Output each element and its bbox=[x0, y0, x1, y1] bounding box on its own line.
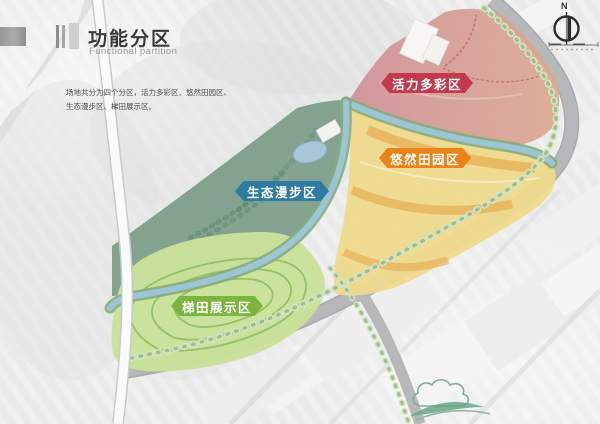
title-deco-bar bbox=[69, 23, 79, 49]
title-deco-bar bbox=[62, 25, 65, 48]
description-line-2: 生态漫步区、梯田展示区。 bbox=[66, 102, 156, 111]
description-line-1: 场地共分为四个分区，活力多彩区、悠然田园区、 bbox=[66, 88, 231, 97]
zone-label-terrace: 梯田展示区 bbox=[171, 296, 263, 316]
scale-bar bbox=[549, 42, 598, 50]
north-label: N bbox=[561, 1, 568, 11]
title-deco-block bbox=[0, 27, 26, 46]
page-subtitle: Functional partition bbox=[89, 46, 177, 57]
description-text: 场地共分为四个分区，活力多彩区、悠然田园区、 生态漫步区、梯田展示区。 bbox=[66, 86, 236, 114]
company-logo: 园林股份 股票代码:605303 bbox=[405, 374, 600, 422]
plan-slide: 功能分区 Functional partition 场地共分为四个分区，活力多彩… bbox=[0, 0, 600, 424]
zone-label-pastoral: 悠然田园区 bbox=[379, 148, 471, 168]
zone-label-eco: 生态漫步区 bbox=[235, 181, 329, 201]
zone-label-terrace-text: 梯田展示区 bbox=[182, 297, 252, 316]
title-deco-bar bbox=[56, 25, 59, 48]
master-plan-map bbox=[0, 0, 600, 424]
zone-label-eco-text: 生态漫步区 bbox=[247, 182, 317, 201]
zone-label-vitality-text: 活力多彩区 bbox=[392, 74, 462, 93]
zone-label-vitality: 活力多彩区 bbox=[381, 73, 473, 93]
zone-label-pastoral-text: 悠然田园区 bbox=[390, 149, 460, 168]
